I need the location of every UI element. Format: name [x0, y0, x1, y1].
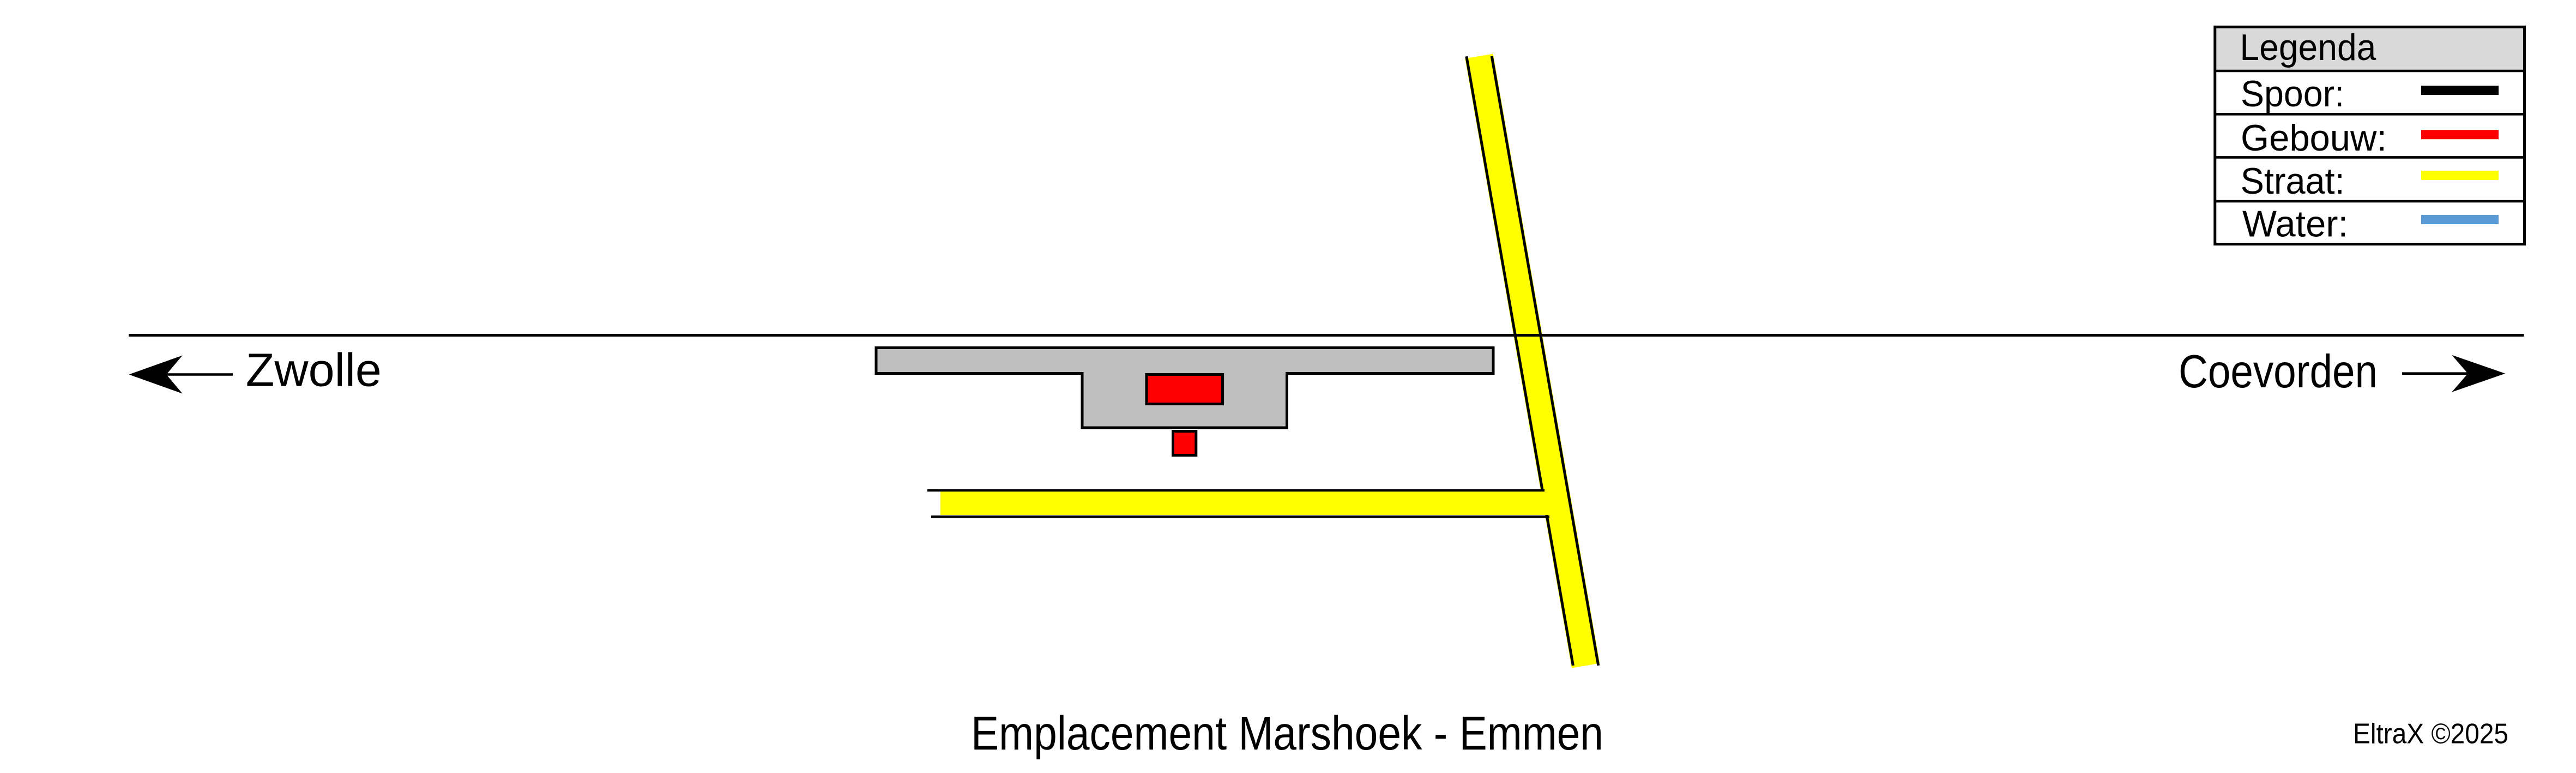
svg-text:Gebouw:: Gebouw:	[2241, 117, 2387, 159]
svg-text:Spoor:: Spoor:	[2241, 73, 2344, 115]
svg-text:EltraX ©2025: EltraX ©2025	[2353, 718, 2508, 750]
svg-text:Emplacement Marshoek - Emmen: Emplacement Marshoek - Emmen	[971, 707, 1603, 760]
svg-text:Water:: Water:	[2242, 203, 2348, 245]
svg-text:Legenda: Legenda	[2240, 27, 2376, 68]
svg-text:Straat:: Straat:	[2241, 160, 2345, 202]
svg-text:Coevorden: Coevorden	[2179, 346, 2378, 398]
svg-text:Zwolle: Zwolle	[246, 345, 382, 397]
